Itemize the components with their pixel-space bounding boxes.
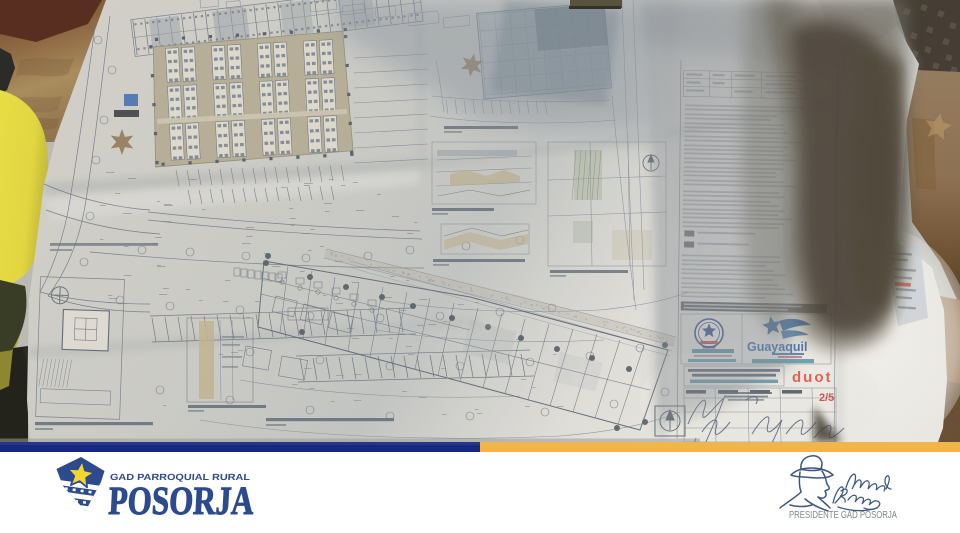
- svg-text:PRESIDENTE GAD POSORJA: PRESIDENTE GAD POSORJA: [789, 510, 897, 521]
- svg-text:POSORJA: POSORJA: [108, 478, 255, 523]
